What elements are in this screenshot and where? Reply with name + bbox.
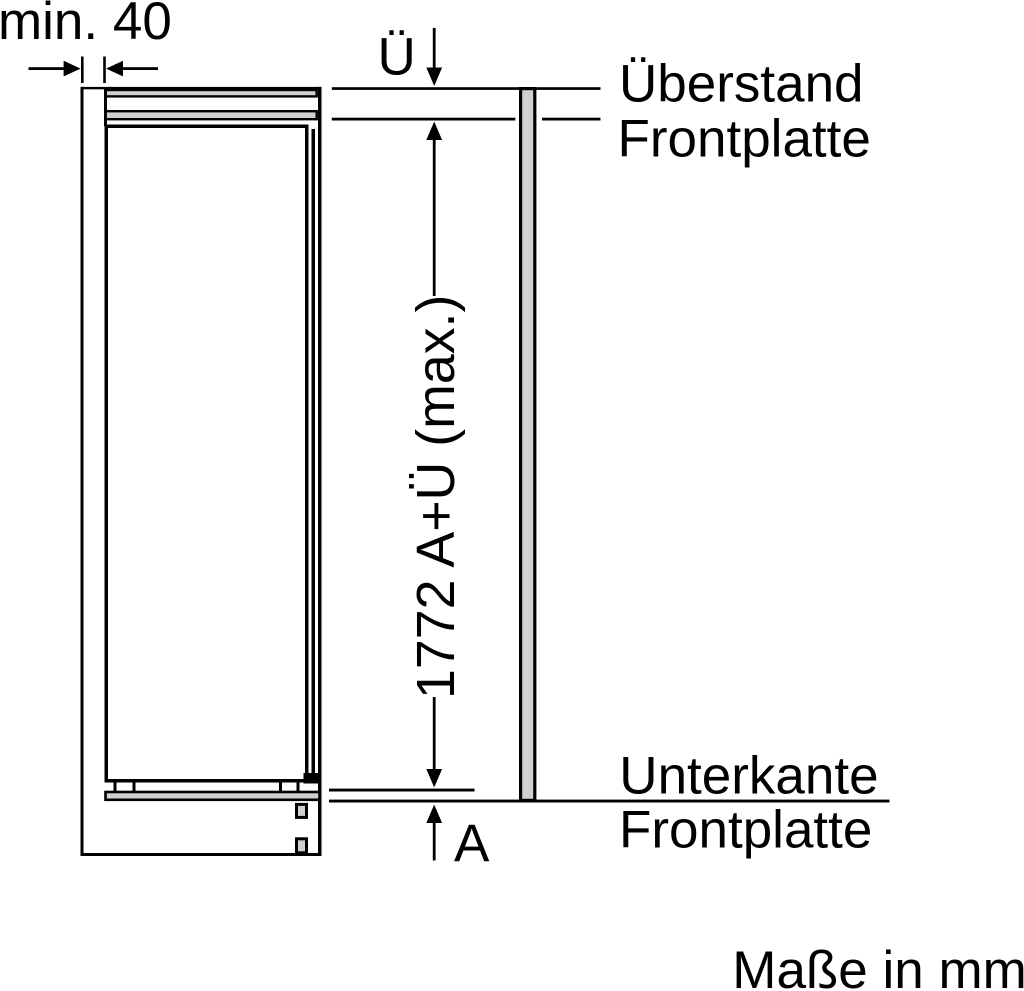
svg-text:1772 A+Ü (max.): 1772 A+Ü (max.) [406,295,466,699]
svg-text:Frontplatte: Frontplatte [618,109,871,168]
svg-text:Unterkante: Unterkante [619,747,878,806]
svg-text:min. 40: min. 40 [0,0,172,51]
svg-text:A: A [454,814,490,873]
svg-text:Ü: Ü [378,28,416,87]
svg-text:Frontplatte: Frontplatte [619,801,872,860]
svg-text:Maße in mm: Maße in mm [732,941,1024,991]
svg-text:Überstand: Überstand [619,54,864,113]
